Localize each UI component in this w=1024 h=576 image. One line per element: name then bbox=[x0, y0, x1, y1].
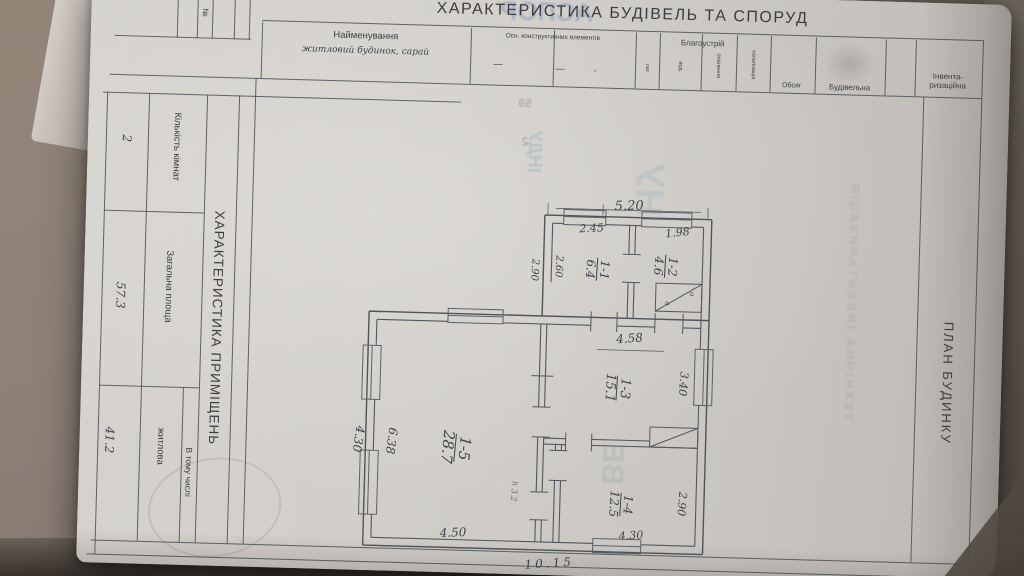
room-label-1-1: 1-1 6.4 bbox=[584, 257, 612, 282]
living-area-value: 41.2 bbox=[102, 426, 117, 453]
round-watermark bbox=[141, 449, 288, 567]
dim-annex-width: 5.20 bbox=[615, 198, 644, 214]
total-area-label: Загальна площа bbox=[162, 250, 175, 323]
valuation-inventory-label: Інвента- ризаційна bbox=[913, 71, 983, 91]
volume-column-label: Обсяг bbox=[782, 82, 801, 90]
room-id: 1-4 bbox=[620, 493, 635, 517]
dim-room4-depth: 2.90 bbox=[674, 491, 689, 516]
construction-dash: — bbox=[555, 64, 565, 75]
stove-symbols bbox=[649, 283, 702, 448]
total-area-value: 57.3 bbox=[113, 282, 128, 309]
room-label-1-4: 1-4 12.5 bbox=[607, 490, 635, 518]
construction-dash: — bbox=[493, 59, 503, 70]
page-title: ХАРАКТЕРИСТИКА БУДІВЕЛЬ ТА СПОРУД bbox=[436, 0, 808, 28]
amenities-sub-water: вод. bbox=[677, 61, 683, 72]
plan-section-title: ПЛАН БУДИНКУ bbox=[938, 322, 956, 445]
bleed-through-number: 2 bbox=[521, 134, 528, 148]
dim-annex-left-outer: 2.90 bbox=[528, 258, 540, 281]
room-area: 6.4 bbox=[584, 259, 598, 279]
dim-annex-left-inner: 2.60 bbox=[552, 255, 564, 278]
inventory-label-line2: ризаційна bbox=[929, 81, 966, 91]
amenities-label: Благоустрій bbox=[681, 38, 725, 48]
room-id: 1-2 bbox=[664, 255, 679, 279]
number-column-label: № bbox=[201, 8, 210, 17]
dim-total-width: 10.15 bbox=[524, 555, 574, 572]
room-id: 1-1 bbox=[596, 258, 611, 282]
dim-room2-width: 1.98 bbox=[665, 225, 691, 241]
amenities-sub-gas: газ bbox=[644, 64, 650, 72]
stamp-smudge bbox=[822, 42, 877, 85]
construction-dash: - bbox=[593, 66, 596, 76]
rooms-count-value: 2 bbox=[120, 134, 134, 142]
stove-mark: а bbox=[663, 301, 671, 305]
room-label-1-5: 1-5 28.7 bbox=[438, 429, 474, 465]
room-area: 12.5 bbox=[607, 490, 621, 517]
rooms-count-label: Кількість кімнат bbox=[170, 112, 183, 181]
name-column-value: житловий будинок, сарай bbox=[302, 44, 430, 58]
room-label-1-2: 1-2 4.6 bbox=[652, 254, 680, 279]
construction-elements-label: Осн. конструктивних елементів bbox=[506, 32, 600, 42]
dim-room4-width: 4.30 bbox=[618, 528, 643, 542]
photo-of-technical-passport-page: АСПОР ІНДУ НУ ВЕ 59 2 ТЕХНІЧНА ІНВЕНТАРИ… bbox=[0, 0, 1024, 576]
stove-mark: о bbox=[688, 292, 696, 296]
room-area: 28.7 bbox=[438, 429, 457, 464]
room-area: 4.6 bbox=[652, 256, 666, 276]
dim-room3-depth: 3.40 bbox=[676, 371, 691, 396]
amenities-sub-sewage: каналізація bbox=[750, 50, 757, 79]
amenities-sub-heating: опалення bbox=[715, 53, 722, 78]
dim-room1-width: 2.45 bbox=[579, 221, 604, 235]
bleed-through-text: ІНДУ bbox=[524, 130, 546, 173]
dim-room5-width: 4.50 bbox=[439, 525, 466, 540]
name-column-label: Найменування bbox=[333, 30, 398, 43]
ceiling-height-note: h 3.2 bbox=[509, 481, 519, 502]
living-area-label: житлова bbox=[154, 428, 166, 465]
including-group-label: В тому числі bbox=[183, 447, 194, 497]
bleed-through-number: 59 bbox=[518, 96, 532, 110]
document-page: АСПОР ІНДУ НУ ВЕ 59 2 ТЕХНІЧНА ІНВЕНТАРИ… bbox=[76, 0, 1012, 576]
bleed-through-text: ТЕХНІЧНА ІНВЕНТАРИЗАЦІЯ bbox=[841, 181, 862, 421]
valuation-build-label: Будівельна bbox=[829, 82, 871, 92]
room-id: 1-3 bbox=[616, 376, 632, 402]
dim-room3-width: 4.58 bbox=[616, 330, 644, 346]
room-label-1-3: 1-3 15.1 bbox=[602, 373, 632, 404]
rooms-table-title: ХАРАКТЕРИСТИКА ПРИМІЩЕНЬ bbox=[206, 210, 228, 445]
room-area: 15.1 bbox=[602, 373, 617, 403]
